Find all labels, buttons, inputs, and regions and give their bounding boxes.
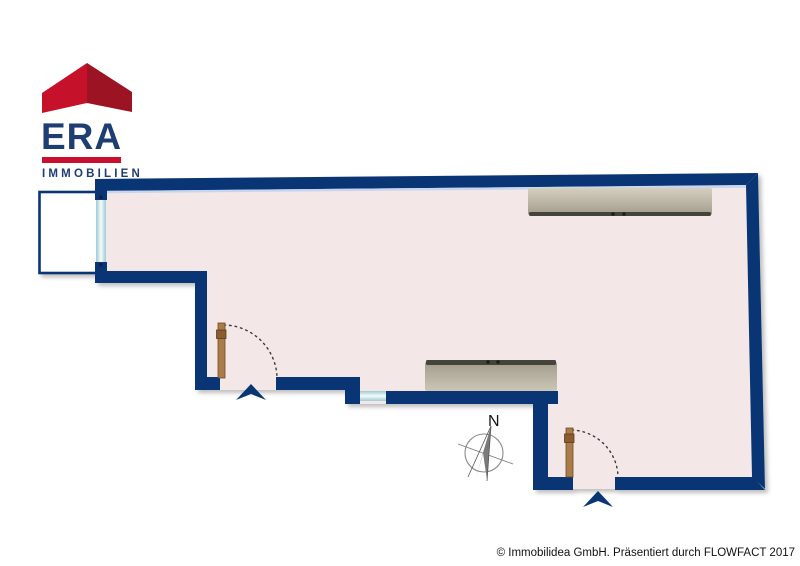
compass-rose: N (458, 413, 513, 481)
floorplan-svg: N (0, 0, 800, 566)
copyright-text: © Immobilidea GmbH. Präsentiert durch FL… (497, 547, 795, 559)
wall-bottom-a (195, 377, 220, 390)
wall-middle (386, 391, 558, 404)
wall-lowerroom-left (533, 391, 548, 490)
compass-label: N (488, 413, 500, 430)
window-horizontal-glass (360, 391, 388, 401)
wall-step (345, 377, 360, 404)
wall-left-vertical (195, 271, 207, 390)
window-frame-dot-bottom (99, 263, 102, 266)
wall-bottom-c (533, 477, 573, 490)
door-right-handle (565, 434, 575, 443)
sideboard-top (528, 188, 712, 216)
wall-bottom-d (615, 477, 765, 490)
window-vertical-glass (96, 200, 106, 262)
window-frame-dot-top (99, 196, 102, 199)
plan-base (40, 173, 766, 490)
door-left-handle (217, 330, 227, 339)
sideboard-middle (425, 360, 557, 391)
page: ERA IMMOBILIEN (0, 0, 800, 566)
balcony (40, 192, 99, 273)
wall-left-horizontal (95, 271, 207, 283)
entrance-arrow-right (583, 491, 613, 507)
